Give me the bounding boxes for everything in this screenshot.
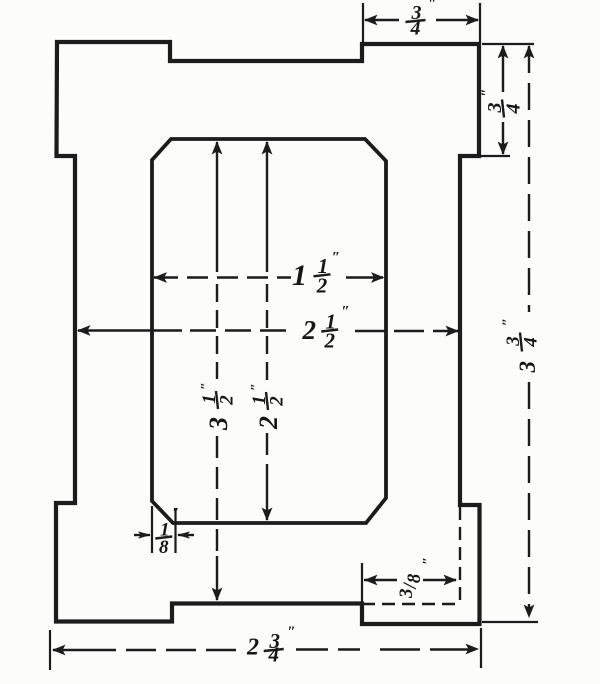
svg-text:″: ″ xyxy=(479,88,495,96)
svg-text:2: 2 xyxy=(302,315,317,345)
svg-text:4: 4 xyxy=(267,643,279,667)
svg-text:2: 2 xyxy=(267,396,288,407)
svg-text:″: ″ xyxy=(199,382,214,390)
svg-text:″: ″ xyxy=(172,505,179,519)
svg-text:2: 2 xyxy=(254,416,283,430)
svg-text:″: ″ xyxy=(500,318,516,326)
svg-text:3: 3 xyxy=(204,417,233,431)
svg-text:2: 2 xyxy=(316,274,328,298)
svg-text:1: 1 xyxy=(292,259,307,292)
svg-text:″: ″ xyxy=(332,249,340,265)
svg-text:4: 4 xyxy=(410,18,421,40)
svg-text:3: 3 xyxy=(515,361,540,374)
svg-text:″: ″ xyxy=(249,383,264,391)
svg-text:2: 2 xyxy=(246,635,259,661)
svg-text:2: 2 xyxy=(217,395,238,406)
svg-text:4: 4 xyxy=(521,337,542,348)
svg-text:″: ″ xyxy=(288,624,296,640)
svg-text:4: 4 xyxy=(502,104,524,115)
svg-text:8: 8 xyxy=(159,537,169,558)
svg-text:2: 2 xyxy=(323,329,335,353)
svg-text:″: ″ xyxy=(428,0,436,12)
svg-text:″: ″ xyxy=(342,304,350,320)
